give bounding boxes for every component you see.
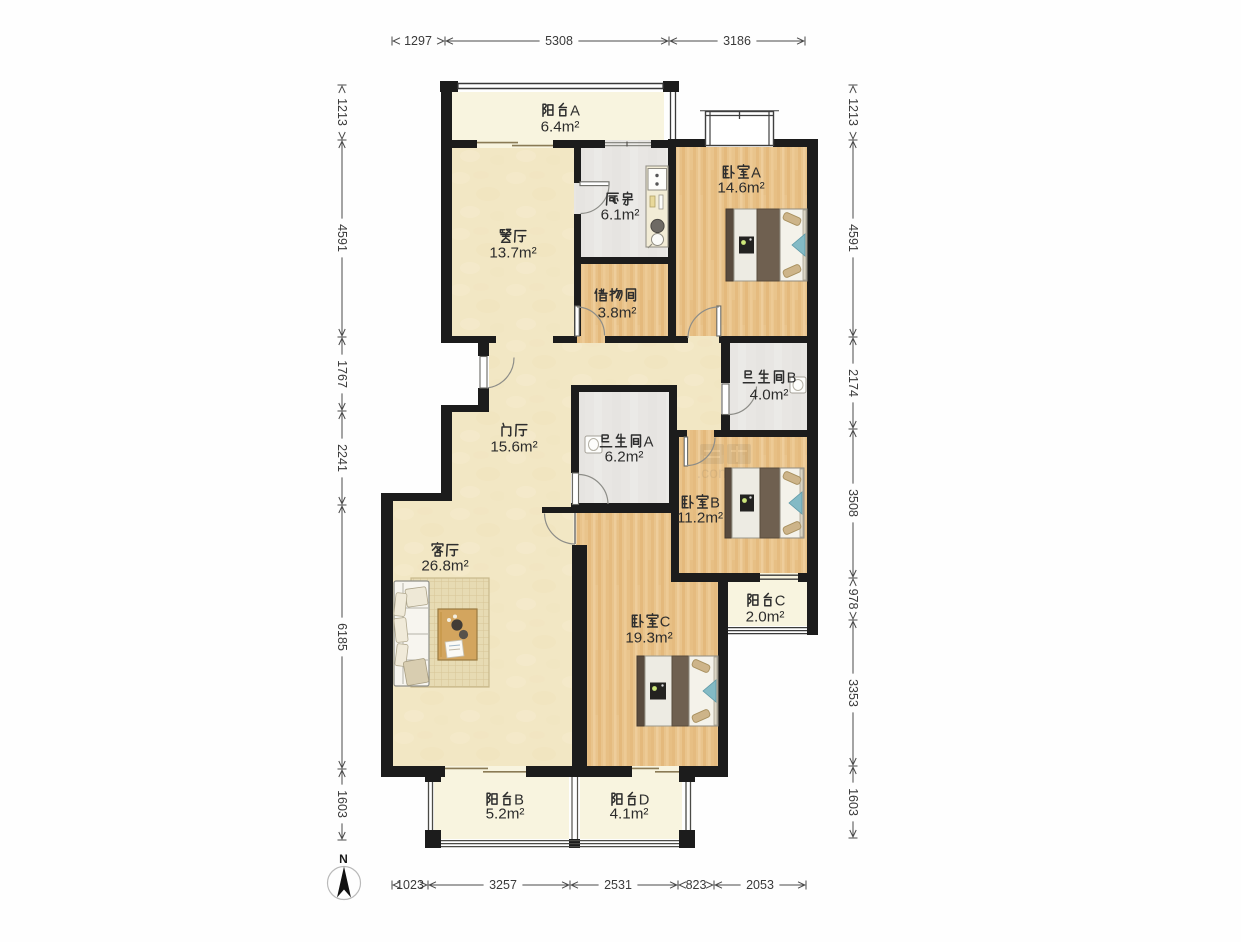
svg-text:13.7m²: 13.7m² bbox=[489, 244, 536, 261]
svg-text:6.4m²: 6.4m² bbox=[541, 118, 580, 135]
svg-text:A: A bbox=[644, 434, 654, 450]
svg-text:C: C bbox=[660, 614, 671, 630]
svg-text:4.0m²: 4.0m² bbox=[750, 386, 789, 403]
svg-text:C: C bbox=[775, 593, 786, 609]
svg-text:1603: 1603 bbox=[846, 788, 860, 816]
svg-text:N: N bbox=[339, 852, 348, 866]
svg-text:1297: 1297 bbox=[404, 34, 432, 48]
svg-text:1213: 1213 bbox=[335, 98, 349, 126]
svg-text:26.8m²: 26.8m² bbox=[421, 557, 468, 574]
svg-text:1023: 1023 bbox=[396, 878, 424, 892]
svg-text:2174: 2174 bbox=[846, 369, 860, 397]
svg-text:15.6m²: 15.6m² bbox=[490, 438, 537, 455]
svg-text:978: 978 bbox=[846, 589, 860, 610]
svg-text:2241: 2241 bbox=[335, 444, 349, 472]
svg-text:A: A bbox=[570, 103, 580, 119]
svg-text:6185: 6185 bbox=[335, 623, 349, 651]
svg-text:1213: 1213 bbox=[846, 98, 860, 126]
svg-text:5308: 5308 bbox=[545, 34, 573, 48]
svg-text:4591: 4591 bbox=[846, 224, 860, 252]
svg-text:6.2m²: 6.2m² bbox=[605, 448, 644, 465]
svg-text:4591: 4591 bbox=[335, 224, 349, 252]
svg-text:5.2m²: 5.2m² bbox=[486, 805, 525, 822]
svg-text:3257: 3257 bbox=[489, 878, 517, 892]
svg-text:14.6m²: 14.6m² bbox=[717, 179, 764, 196]
svg-text:B: B bbox=[787, 370, 797, 386]
svg-text:3353: 3353 bbox=[846, 679, 860, 707]
svg-text:4.1m²: 4.1m² bbox=[610, 805, 649, 822]
svg-text:19.3m²: 19.3m² bbox=[625, 629, 672, 646]
svg-text:3.8m²: 3.8m² bbox=[598, 304, 637, 321]
svg-text:2531: 2531 bbox=[604, 878, 632, 892]
svg-text:2.0m²: 2.0m² bbox=[746, 608, 785, 625]
svg-text:1767: 1767 bbox=[335, 360, 349, 388]
svg-text:823: 823 bbox=[686, 878, 707, 892]
svg-text:3508: 3508 bbox=[846, 489, 860, 517]
svg-text:6.1m²: 6.1m² bbox=[601, 206, 640, 223]
svg-text:11.2m²: 11.2m² bbox=[677, 509, 723, 526]
svg-text:3186: 3186 bbox=[723, 34, 751, 48]
svg-text:2053: 2053 bbox=[746, 878, 774, 892]
svg-text:1603: 1603 bbox=[335, 790, 349, 818]
